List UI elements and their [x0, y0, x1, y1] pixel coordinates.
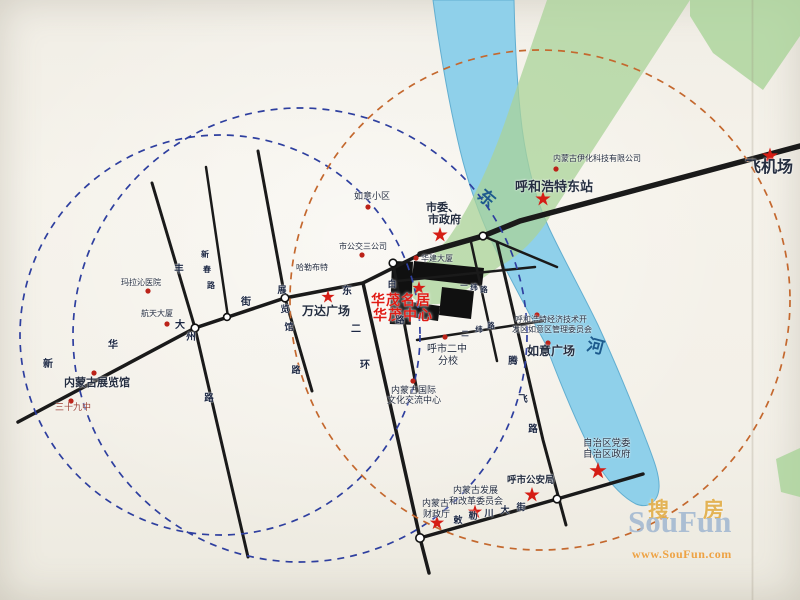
road-char-bai: 白 — [385, 280, 399, 289]
label-ruyi-estate: 如意小区 — [354, 192, 390, 201]
road-char-fengzhou: 州 — [184, 334, 198, 344]
junction-node — [224, 314, 231, 321]
road-char-erwei: 二 — [458, 330, 472, 338]
green-patch-bottomright — [776, 448, 800, 497]
star-icon — [432, 227, 447, 241]
building-block — [439, 287, 474, 319]
label-region-gov-line1: 自治区党委 — [583, 440, 631, 450]
road-char-east2ndring: 环 — [358, 361, 372, 371]
label-yihua-company: 内蒙古伊化科技有限公司 — [553, 155, 641, 163]
road-char-zhanlanguan: 路 — [289, 366, 303, 375]
poi-dot — [365, 204, 370, 209]
poi-dot — [553, 166, 558, 171]
road-char-chilechuan: 勒 — [466, 512, 480, 521]
label-finance-line1: 内蒙古 — [422, 499, 449, 508]
road-east-2nd-ring — [363, 283, 429, 573]
road-char-fengzhou: 丰 — [172, 266, 186, 276]
road-char-xinchun: 路 — [204, 282, 218, 290]
road-char-tengfei: 腾 — [506, 358, 520, 368]
label-wanda-plaza: 万达广场 — [302, 305, 350, 318]
road-char-chilechuan: 大 — [498, 506, 512, 515]
label-city-gov-line2: 市政府 — [428, 215, 461, 227]
road-char-xinhua: 新 — [41, 360, 55, 370]
junction-node — [553, 495, 561, 503]
label-school-39: 三十九中 — [55, 403, 91, 412]
label-intl-center-line2: 文化交流中心 — [387, 396, 441, 405]
label-region-gov-line2: 自治区政府 — [583, 451, 631, 461]
road-char-east2ndring: 东 — [340, 287, 354, 297]
road-char-xinhua: 大 — [173, 321, 187, 331]
site-name-line1: 华茂名居 — [371, 295, 431, 309]
label-no2-school-line2: 分校 — [438, 357, 458, 368]
label-hangtian-tower: 航天大厦 — [141, 310, 173, 318]
road-char-xinchun: 新 — [198, 251, 212, 259]
road-char-erwei: 路 — [484, 322, 498, 330]
watermark-url: www.SouFun.com — [632, 547, 732, 562]
road-fengzhou — [152, 183, 248, 557]
road-char-xinhua: 华 — [106, 341, 120, 351]
star-icon — [524, 487, 539, 501]
label-huajian-tower: 华建大厦 — [421, 255, 453, 263]
road-char-tengfei: 飞 — [516, 396, 530, 406]
scanned-location-map: 飞机场 呼和浩特东站 内蒙古伊化科技有限公司 市委、 市政府 如意小区 市公交三… — [0, 0, 800, 600]
road-char-xinhua: 街 — [239, 298, 253, 308]
label-finance-line2: 财政厅 — [423, 510, 450, 519]
poi-dot — [442, 334, 447, 339]
junction-node — [416, 534, 424, 542]
junction-node — [389, 259, 397, 267]
label-edz-committee-line2: 发区如意区管理委员会 — [512, 326, 592, 334]
road-char-bai: 路 — [393, 316, 407, 325]
junction-node — [191, 324, 199, 332]
junction-node — [281, 294, 289, 302]
label-halebute: 哈勒布特 — [296, 264, 328, 272]
poi-dot — [91, 370, 96, 375]
green-patch-topright — [690, 0, 800, 90]
label-ndrc-line1: 内蒙古发展 — [453, 486, 498, 495]
label-ruyi-square: 如意广场 — [527, 345, 575, 358]
label-city-gov-line1: 市委、 — [426, 203, 459, 215]
road-char-east2ndring: 二 — [349, 325, 363, 335]
road-char-chilechuan: 街 — [514, 503, 528, 512]
road-char-fengzhou: 路 — [202, 395, 216, 405]
road-char-chilechuan: 川 — [482, 509, 496, 518]
road-char-zhanlanguan: 展 — [275, 286, 289, 295]
poi-dot — [413, 255, 418, 260]
label-police: 呼市公安局 — [507, 477, 555, 487]
label-east-station: 呼和浩特东站 — [515, 180, 593, 194]
road-char-chilechuan: 敕 — [451, 516, 465, 525]
road-xinchun — [206, 167, 228, 317]
road-char-yiwei: 路 — [477, 286, 491, 294]
label-exhibition-hall: 内蒙古展览馆 — [64, 378, 130, 390]
road-char-xinchun: 春 — [200, 266, 214, 274]
poi-dot — [359, 252, 364, 257]
label-bus-company: 市公交三公司 — [339, 243, 387, 251]
label-ndrc-line2: 和改革委员会 — [449, 497, 503, 506]
road-char-zhanlanguan: 馆 — [282, 323, 296, 332]
paper-crease — [751, 0, 754, 600]
poi-dot — [145, 288, 150, 293]
label-edz-committee-line1: 呼和浩特经济技术开 — [515, 316, 587, 324]
label-no2-school-line1: 呼市二中 — [427, 345, 467, 356]
label-malaqin-hospital: 玛拉沁医院 — [121, 279, 161, 287]
junction-node — [479, 232, 487, 240]
poi-dot — [410, 378, 415, 383]
watermark-logo: SouFun — [628, 504, 731, 540]
poi-dot — [164, 321, 169, 326]
road-char-tengfei: 路 — [526, 426, 540, 436]
road-char-zhanlanguan: 览 — [278, 305, 292, 314]
